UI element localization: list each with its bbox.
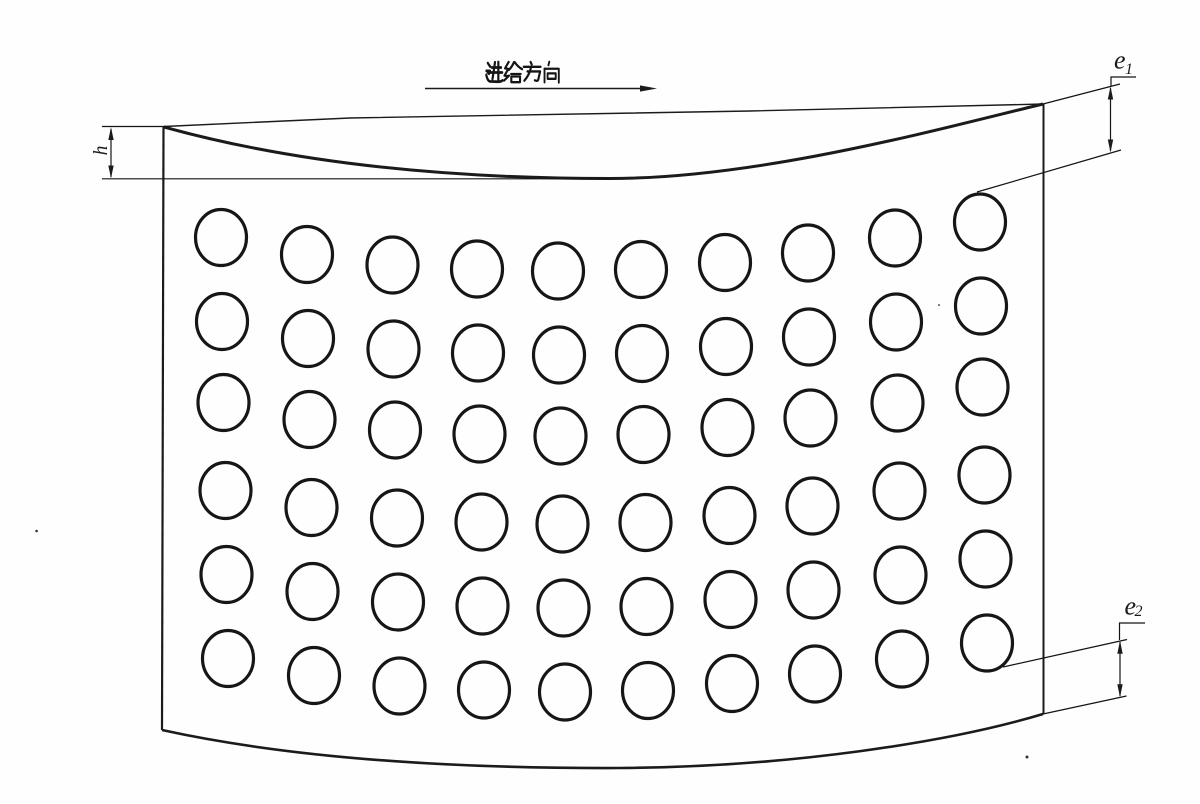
svg-text:h: h — [91, 146, 112, 156]
svg-text:1: 1 — [1125, 61, 1133, 78]
svg-text:2: 2 — [1135, 603, 1143, 620]
svg-text:e: e — [1114, 45, 1126, 74]
